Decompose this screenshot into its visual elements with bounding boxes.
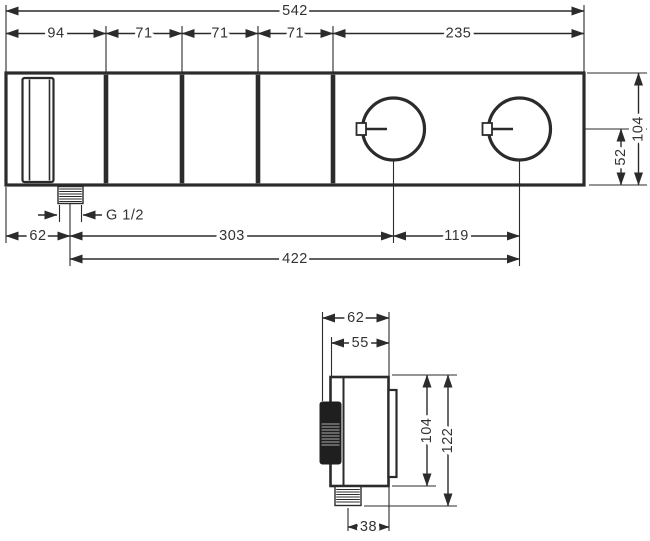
dim-inlet-axis-to-front: 38 [360,519,377,535]
left-end-cap [23,78,54,182]
dim-segment-1: 94 [47,26,64,42]
dim-segment-2: 71 [135,26,152,42]
dim-side-total-height: 122 [440,428,456,454]
dim-inlet-to-handle2: 422 [282,251,308,267]
dim-body-depth: 55 [352,335,369,351]
dim-handle-axis-to-bottom: 52 [613,148,629,165]
technical-drawing-canvas: 542 94 71 71 71 235 52 104 G 1/2 62 303 … [0,0,650,541]
dim-edge-to-inlet: 62 [29,228,46,244]
side-view: 62 55 104 122 38 [320,310,457,535]
dim-segment-5: 235 [446,26,472,42]
dim-total-height: 104 [631,116,647,142]
side-inlet-thread-connector [335,487,361,506]
handle2-index-tab [483,123,493,135]
dim-total-width: 542 [282,3,308,19]
dim-handle1-to-handle2: 119 [444,228,469,244]
side-face-plate [389,390,397,477]
dim-segment-3: 71 [211,26,228,42]
thermostat-module-drawing: 542 94 71 71 71 235 52 104 G 1/2 62 303 … [0,0,650,541]
dim-total-depth: 62 [347,310,364,326]
side-knob-knurled [320,402,341,464]
dim-inlet-to-handle1: 303 [219,228,245,244]
dim-side-body-height: 104 [419,418,435,444]
thread-size-label: G 1/2 [106,208,144,224]
handle1-index-tab [357,123,367,135]
inlet-thread-connector [58,187,83,204]
front-view: 542 94 71 71 71 235 52 104 G 1/2 62 303 … [6,3,647,267]
dim-segment-4: 71 [287,26,304,42]
